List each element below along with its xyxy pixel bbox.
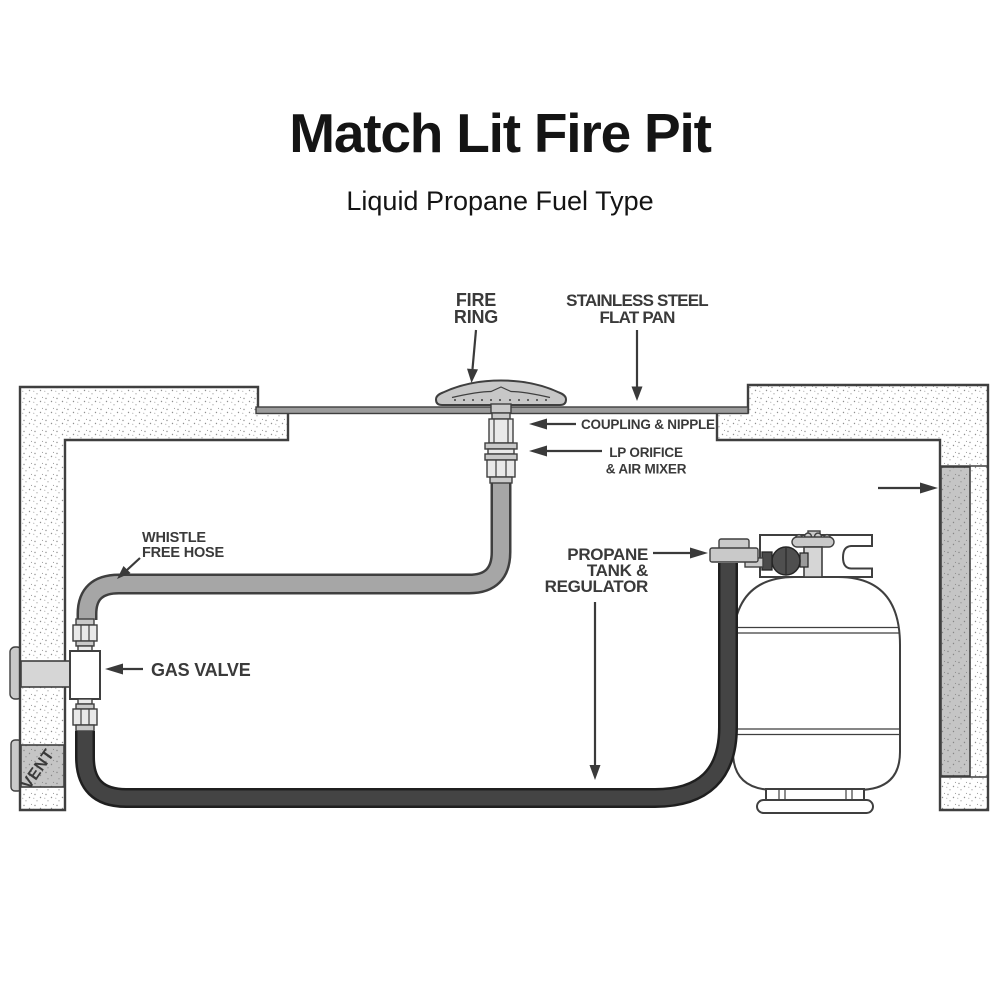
coupling-stack [485,413,517,483]
svg-text:COUPLING & NIPPLE: COUPLING & NIPPLE [581,417,715,432]
svg-text:WHISTLE: WHISTLE [142,530,206,546]
svg-text:RING: RING [454,307,498,327]
valve-handwheel [792,537,834,547]
label-fire-ring: FIRE RING [454,290,498,383]
label-orifice: LP ORIFICE & AIR MIXER [529,445,687,477]
label-flat-pan: STAINLESS STEEL FLAT PAN [566,291,708,401]
orifice-ring-3 [485,454,517,460]
orifice-ring-2 [488,449,514,454]
label-whistle-hose: WHISTLE FREE HOSE [117,530,225,579]
fire-pit-diagram: Match Lit Fire Pit Liquid Propane Fuel T… [0,0,1000,1000]
right-vent-panel [941,467,970,776]
gas-valve-body [70,651,100,699]
label-propane-tank: PROPANE TANK & REGULATOR [545,545,708,780]
coupling [489,419,513,443]
label-gas-valve: GAS VALVE [105,660,251,680]
tank-body [733,577,900,790]
svg-text:REGULATOR: REGULATOR [545,577,648,596]
nipple [492,413,510,419]
fire-ring-arrow [473,330,477,369]
svg-text:FREE HOSE: FREE HOSE [142,545,225,561]
label-coupling: COUPLING & NIPPLE [529,417,715,432]
hose-elbow [710,548,758,562]
supply-hose [85,563,728,798]
svg-text:& AIR MIXER: & AIR MIXER [606,462,687,477]
fire-ring-hub [491,404,511,413]
whistle-hose-arrow [127,558,140,570]
air-mixer-hex [487,460,515,477]
svg-text:GAS VALVE: GAS VALVE [151,660,251,680]
gas-valve-stem [21,661,71,687]
tank-foot-ring [766,789,864,800]
tank-base [757,800,873,813]
hose-nut [490,477,512,483]
svg-text:LP ORIFICE: LP ORIFICE [609,445,683,460]
right-vent-arrow [878,483,938,494]
propane-tank [733,577,900,813]
orifice-ring-1 [485,443,517,449]
diagram-canvas: VENT [0,0,1000,1000]
svg-text:FLAT PAN: FLAT PAN [599,308,675,327]
